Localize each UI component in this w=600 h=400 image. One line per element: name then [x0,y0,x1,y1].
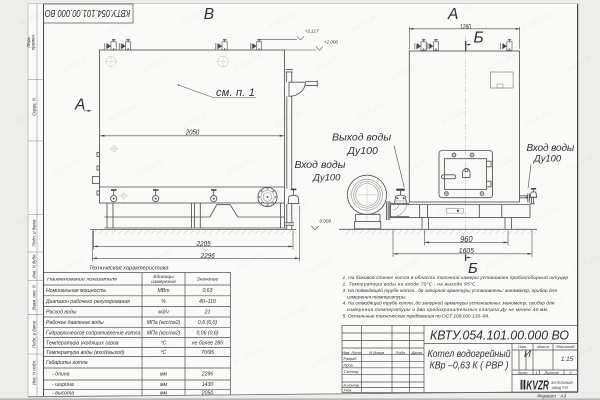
svg-text:2205: 2205 [196,239,211,248]
svg-text:5. Остальные технические треб: 5. Остальные технические требования по О… [343,313,490,319]
svg-text:измерения температуры и два пр: измерения температуры и два предохраните… [347,307,549,313]
svg-text:МПа (кгс/см2): МПа (кгс/см2) [147,330,181,336]
svg-text:21: 21 [204,310,211,316]
svg-text:Гидравлическое сопративление к: Гидравлическое сопративление котла [46,330,141,336]
svg-text:Взам. инв. N: Взам. инв. N [32,284,37,310]
svg-text:- длина: - длина [52,372,70,378]
svg-text:мм: мм [160,382,168,388]
svg-text:МПа (кгс/см2): МПа (кгс/см2) [147,320,181,326]
svg-text:не более 280: не более 280 [192,340,224,346]
svg-text:2296: 2296 [200,251,215,260]
svg-text:Подп.: Подп. [396,350,406,355]
svg-text:см. п. 1: см. п. 1 [216,87,255,99]
svg-text:0,6 (6,0): 0,6 (6,0) [198,320,217,326]
svg-text:Утв.: Утв. [344,388,353,393]
svg-text:0.000: 0.000 [320,219,332,224]
svg-text:Инв. N подл.: Инв. N подл. [32,360,37,385]
svg-text:МВт: МВт [158,288,171,294]
svg-text:2. Температура воды на входе: 2. Температура воды на входе 70°С , на в… [342,281,479,287]
svg-text:А3: А3 [560,393,567,398]
svg-text:0,63: 0,63 [202,288,212,294]
svg-text:Подп. и дата: Подп. и дата [32,219,37,247]
svg-text:Ду100: Ду100 [533,153,562,164]
svg-text:Изм. Лист: Изм. Лист [342,350,362,355]
svg-text:КВТУ.054.101.00.000 ВО: КВТУ.054.101.00.000 ВО [430,328,569,343]
svg-text:1. На боковой стенке котла в: 1. На боковой стенке котла в области топ… [343,274,569,281]
svg-text:N докум: N докум [369,350,384,355]
svg-text:- высота: - высота [52,391,74,397]
svg-text:2050: 2050 [201,391,214,397]
svg-text:Масштаб: Масштаб [556,344,575,349]
svg-text:1: 1 [535,370,537,375]
svg-text:960: 960 [460,235,473,244]
svg-text:Перв.: Перв. [26,36,31,47]
svg-text:3. На подводящей трубе котла: 3. На подводящей трубе котла , до запорн… [343,287,558,294]
svg-text:мм: мм [160,372,168,378]
svg-text:ЗАВОД РЭП: ЗАВОД РЭП [552,386,569,390]
svg-text:1430: 1430 [202,382,214,388]
svg-text:Техническая характеристика: Техническая характеристика [89,265,169,271]
svg-text:примен.: примен. [31,34,36,50]
svg-text:Ду100: Ду100 [347,145,378,157]
svg-text:+2.000: +2.000 [324,40,339,45]
svg-text:1605: 1605 [459,246,475,255]
svg-text:Подп. и дата: Подп. и дата [32,320,37,348]
svg-text:Пров.: Пров. [344,362,354,367]
svg-text:м3/ч: м3/ч [158,310,169,316]
svg-text:1260: 1260 [460,24,471,31]
svg-text:%: % [161,299,166,305]
svg-text:измерения: измерения [151,280,176,285]
svg-text:Температура уходящих газов: Температура уходящих газов [46,340,119,346]
svg-text:Номинальная мощность: Номинальная мощность [46,288,106,294]
svg-text:Т.контр.: Т.контр. [344,369,360,374]
svg-text:Б: Б [468,260,478,277]
svg-text:2296: 2296 [201,372,214,378]
svg-text:КОТЕЛЬНЫЙ: КОТЕЛЬНЫЙ [552,381,573,385]
svg-text:Разраб.: Разраб. [344,356,358,361]
svg-text:КВр –0,63 К ( РВР ): КВр –0,63 К ( РВР ) [430,361,509,372]
svg-text:Формат: Формат [537,393,556,398]
svg-text:И: И [524,349,531,360]
svg-text:КВТУ.054.101.00.000 ВО: КВТУ.054.101.00.000 ВО [45,7,131,18]
svg-text:70/95: 70/95 [201,350,214,356]
svg-text:Лист: Лист [516,370,528,375]
svg-text:Рабочее давление воды: Рабочее давление воды [46,320,104,326]
svg-text:Н.контр.: Н.контр. [344,382,360,387]
svg-text:0,06 (0,6): 0,06 (0,6) [196,330,218,336]
svg-text:KVZR: KVZR [526,378,549,392]
svg-text:Лит.: Лит. [517,344,527,349]
svg-text:Масса: Масса [537,344,549,349]
svg-text:+2.117: +2.117 [305,29,319,34]
svg-text:А: А [74,97,85,114]
svg-text:Выход воды: Выход воды [332,131,391,143]
svg-text:Инв. N дубл.: Инв. N дубл. [32,254,37,279]
svg-text:- ширина: - ширина [52,382,74,388]
svg-text:Значение: Значение [197,277,219,283]
svg-text:Листов: Листов [543,370,558,375]
svg-text:Б: Б [474,30,484,47]
